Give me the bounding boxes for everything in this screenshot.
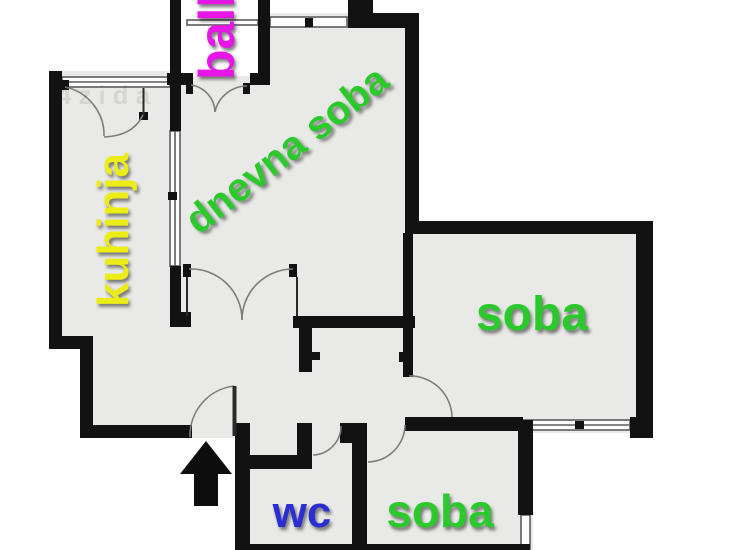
floor-plan: balk kuhinja dnevna soba soba wc soba 4z… xyxy=(0,0,740,550)
room-label-bedroom-right: soba xyxy=(476,291,588,339)
watermark: 4zida xyxy=(57,80,157,111)
bedroom-bottom-window xyxy=(521,515,530,549)
room-label-wc: wc xyxy=(273,491,332,535)
room-label-bedroom-bottom: soba xyxy=(386,488,493,534)
entrance-arrow-icon xyxy=(180,441,232,506)
room-label-kitchen: kuhinja xyxy=(92,153,136,307)
hallway-floor xyxy=(93,315,413,438)
room-label-balcony: balk xyxy=(192,0,242,80)
